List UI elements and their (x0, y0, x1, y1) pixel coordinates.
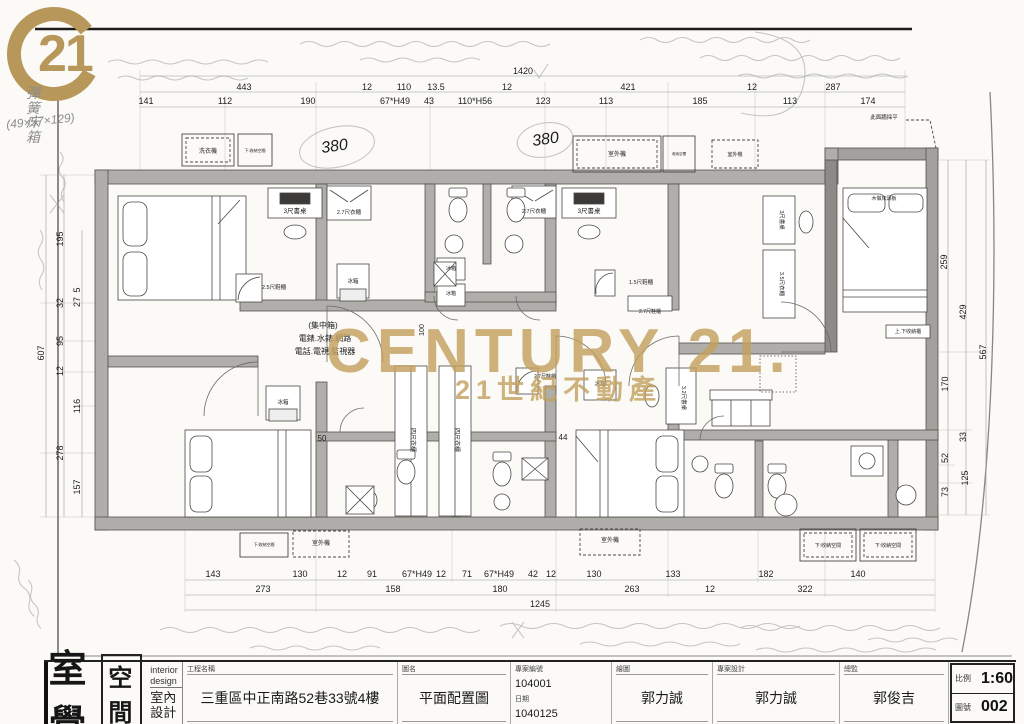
dimension-label: 190 (300, 96, 315, 106)
dimension-label: 50 (318, 434, 327, 443)
sheet-label: 圖號 (952, 702, 981, 713)
dimension-label: 91 (367, 569, 377, 579)
room-label: 洗衣機 (199, 147, 217, 155)
dimension-label: 157 (72, 479, 82, 494)
room-label: 3.5尺衣櫃 (778, 272, 786, 297)
room-label: 木做床頭板 (871, 195, 896, 202)
field-designer-value: 郭力誠 (717, 674, 835, 722)
dimension-label: 443 (236, 82, 251, 92)
handwritten-scribble (12, 559, 37, 617)
handwritten-scribble (868, 638, 958, 642)
century21-logo: 21 (4, 2, 112, 114)
field-designer-label: 專案設計 (717, 664, 835, 674)
dimension-label: 67*H49 (380, 96, 410, 106)
dimension-label: 1420 (513, 66, 533, 76)
desk (763, 196, 813, 244)
c21-number: 21 (38, 24, 92, 84)
handwritten-scribble (700, 56, 900, 61)
dimension-label: 33 (958, 432, 968, 442)
room-label: 2.7尺衣櫃 (337, 208, 362, 216)
dimension-label: 182 (758, 569, 773, 579)
handwritten-scribble (108, 60, 268, 64)
room-label: 2.7尺鞋櫃 (639, 308, 661, 315)
field-project: 工程名稱 三重區中正南路52巷33號4樓 (183, 662, 398, 724)
field-draftsman-label: 繪圖 (616, 664, 708, 674)
field-project-value: 三重區中正南路52巷33號4樓 (187, 674, 393, 722)
room-label: 冰箱 (277, 398, 289, 406)
dimension-label: 185 (692, 96, 707, 106)
field-director-value: 郭俊吉 (844, 674, 944, 722)
room-label: 下:收納空間 (244, 147, 265, 153)
room-label: 冰箱 (347, 277, 359, 285)
dimension-label: 112 (218, 96, 232, 106)
pencil-number: 380 (531, 129, 560, 150)
title-block: 室覺 空間 interior design 室內設計 工程名稱 三重區中正南路5… (44, 660, 1016, 724)
dimension-label: 322 (797, 584, 812, 594)
handwritten-scribble (360, 58, 480, 62)
room-label: 1.5尺鞋櫃 (629, 278, 654, 286)
field-case-date: 專案編號 104001 日期 1040125 (511, 662, 612, 724)
dimension-label: 12 (747, 82, 757, 92)
dimension-label: 12 (362, 82, 372, 92)
dimension-label: 130 (586, 569, 601, 579)
dimension-label: 195 (55, 231, 65, 246)
room-label: 室外機 (601, 536, 619, 544)
watermark-chinese: 21世紀不動產 (455, 368, 662, 407)
dimension-label: 12 (705, 584, 715, 594)
dimension-label: 158 (385, 584, 400, 594)
field-case-value: 104001 (515, 676, 607, 692)
company-name: 室覺 (48, 638, 93, 724)
pencil-circled-numbers: 380 380 (320, 129, 560, 157)
company-english: interior design (150, 665, 182, 687)
company-chinese: 室內設計 (150, 687, 182, 721)
handwritten-scribble (118, 76, 248, 80)
room-label: 3尺書桌 (778, 210, 786, 230)
scale-value: 1:60 (981, 670, 1013, 688)
dimension-label: 113 (783, 96, 797, 106)
bed (576, 430, 684, 517)
field-case-label: 專案編號 (515, 664, 607, 674)
room-label: 下:收納空間 (815, 542, 841, 549)
dimension-label: 141 (138, 96, 153, 106)
dimension-label: 110 (397, 82, 411, 92)
dimension-label: 73 (940, 487, 950, 497)
bed (185, 430, 311, 517)
dimension-label: 44 (559, 433, 568, 442)
field-director: 總監 郭俊吉 (840, 662, 949, 724)
dimension-label: 13.5 (427, 82, 445, 92)
dimension-label: 67*H49 (484, 569, 514, 579)
field-director-label: 總監 (844, 664, 944, 674)
room-label: 室外機 (727, 151, 742, 158)
dimension-label: 67*H49 (402, 569, 432, 579)
dimension-label: 140 (850, 569, 865, 579)
dimension-label: 113 (599, 96, 613, 106)
dimension-label: 287 (825, 82, 840, 92)
company-box-word: 空間 (101, 654, 142, 724)
dimension-label: 1245 (530, 599, 550, 609)
room-label: 四尺衣櫃 (453, 428, 461, 452)
handwritten-scribble (160, 628, 480, 633)
dimension-label: 278 (55, 445, 65, 460)
dimension-label: 110*H56 (458, 96, 492, 106)
dimension-label: 43 (424, 96, 434, 106)
field-date-value: 1040125 (515, 706, 607, 722)
scanned-floorplan-sheet: 14204431211013.5124211228714111219067*H4… (0, 0, 1024, 724)
room-label: 下:收納空間 (875, 542, 901, 549)
dimension-label: 273 (255, 584, 270, 594)
handwritten-scribble (58, 152, 67, 202)
field-date-label: 日期 (515, 694, 607, 704)
scale-label: 比例 (952, 673, 981, 684)
company-logo-zone: 室覺 空間 interior design 室內設計 (48, 662, 181, 724)
dimension-label: 180 (492, 584, 507, 594)
dimension-label: 12 (502, 82, 512, 92)
sofa (710, 390, 772, 426)
pencil-number: 380 (320, 136, 349, 157)
dimension-label: 32 (55, 298, 65, 308)
bed (118, 196, 246, 300)
room-label: 收納空間 (672, 151, 687, 156)
room-label: 3尺書桌 (283, 206, 307, 215)
room-label: 冰箱 (446, 265, 456, 272)
sheet-row: 圖號 002 (952, 694, 1013, 722)
bed (843, 188, 927, 312)
handwritten-scribble (580, 642, 740, 646)
field-draftsman: 繪圖 郭力誠 (612, 662, 713, 724)
dimension-label: 42 (528, 569, 538, 579)
handwritten-scribble (250, 646, 380, 650)
dimension-label: 421 (620, 82, 635, 92)
handwritten-scribble (756, 648, 936, 652)
dimension-label: 12 (337, 569, 347, 579)
dimension-label: 95 (55, 336, 65, 346)
handwritten-scribble (740, 626, 940, 631)
sheet-value: 002 (981, 698, 1013, 716)
dimension-label: 174 (860, 96, 875, 106)
room-label: 2.7尺衣櫃 (522, 207, 547, 215)
room-label: 室外機 (608, 150, 626, 158)
field-draftsman-value: 郭力誠 (616, 674, 708, 722)
dimension-label: 143 (205, 569, 220, 579)
title-fields: 工程名稱 三重區中正南路52巷33號4樓 圖名 平面配置圖 專案編號 10400… (182, 662, 949, 724)
dimension-label: 123 (535, 96, 550, 106)
dimension-label: 130 (292, 569, 307, 579)
handwritten-scribble (38, 230, 45, 290)
dimension-label: 12 (55, 366, 65, 376)
room-label: 室外機 (312, 539, 330, 547)
handwritten-scribble (300, 42, 550, 47)
dimension-label: 259 (939, 254, 949, 269)
room-label: 3.2尺書桌 (680, 386, 688, 411)
scale-sheet-box: 比例 1:60 圖號 002 (950, 663, 1015, 723)
dimension-label: 5 (72, 287, 82, 292)
field-designer: 專案設計 郭力誠 (713, 662, 840, 724)
scale-row: 比例 1:60 (952, 665, 1013, 694)
dimension-label: 116 (72, 399, 82, 413)
dimension-label: 263 (624, 584, 639, 594)
room-label: 下:收納空間 (253, 541, 274, 547)
room-label: 此面牆採平 (870, 113, 898, 121)
dimension-label: 12 (546, 569, 556, 579)
room-label: 四尺衣櫃 (409, 428, 417, 452)
field-project-label: 工程名稱 (187, 664, 393, 674)
field-drawing-value: 平面配置圖 (402, 674, 506, 722)
room-label: 3尺書桌 (577, 206, 601, 215)
dimension-label: 607 (36, 345, 46, 360)
field-drawing: 圖名 平面配置圖 (398, 662, 511, 724)
field-drawing-label: 圖名 (402, 664, 506, 674)
dimension-label: 125 (960, 470, 970, 485)
dimension-label: 71 (462, 569, 472, 579)
dimension-label: 52 (940, 453, 950, 463)
room-label: 2.5尺鞋櫃 (262, 283, 287, 291)
dimension-label: 12 (436, 569, 446, 579)
dimension-label: 27 (72, 297, 82, 307)
room-label: 冰箱 (446, 290, 456, 297)
dimension-label: 133 (665, 569, 680, 579)
